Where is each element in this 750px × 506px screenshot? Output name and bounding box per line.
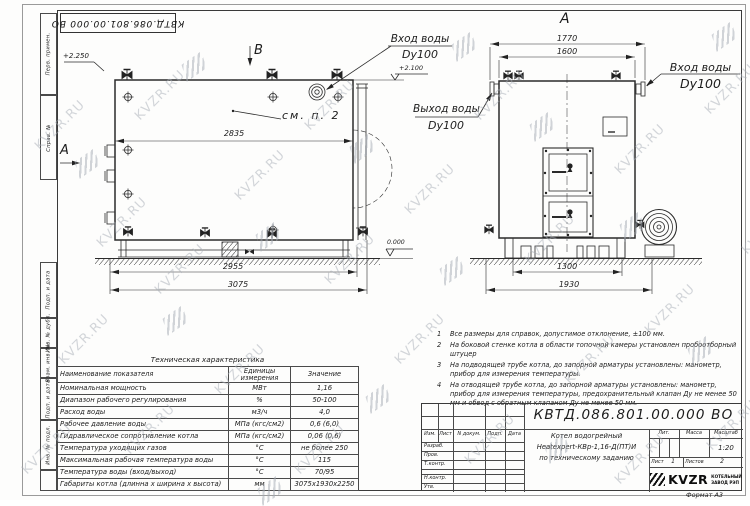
- row-prov: Пров.: [424, 453, 439, 458]
- lit-label: Лит.: [649, 431, 679, 436]
- drawing-sheet: KVZR.RUKVZR.RUKVZR.RUKVZR.RUKVZR.RUKVZR.…: [0, 0, 750, 500]
- row-tkontr: Т.контр.: [424, 462, 446, 467]
- tech-table-title: Техническая характеристика: [57, 355, 358, 366]
- outlet-dn: Dy100: [413, 120, 479, 131]
- listov-value: 2: [714, 459, 730, 465]
- inlet-front-dn: Dy100: [661, 78, 740, 91]
- table-row: Диапазон рабочего регулирования%50-100: [58, 395, 359, 407]
- table-row: Гидравлическое сопротивление котлаМПа (к…: [58, 431, 359, 443]
- strip-podp-data-2: Подп. и дата: [40, 378, 57, 420]
- col-units: Единицы измерения: [229, 367, 291, 383]
- side-view: [60, 46, 428, 294]
- elevation-top: +2.250: [63, 53, 89, 60]
- table-row: Габариты котла (длинна х ширина х высота…: [58, 479, 359, 491]
- strip-empty: [40, 470, 57, 491]
- row-utv: Утв.: [424, 485, 435, 490]
- note-1: 1Все размеры для справок, допустимое отк…: [437, 330, 742, 339]
- row-razrab: Разраб.: [424, 444, 444, 449]
- title-block: КВТД.086.801.00.000 ВО Изм. Лист N докум…: [421, 403, 742, 491]
- listov-label: Листов: [685, 460, 704, 465]
- tech-characteristics: Техническая характеристика Наименование …: [57, 355, 359, 491]
- product-name-line3: по техническому заданию: [526, 455, 647, 462]
- view-mark-a: А: [560, 12, 570, 26]
- table-row: Рабочее давление водыМПа (кгс/см2)0,6 (6…: [58, 419, 359, 431]
- row-nkontr: Н.контр.: [424, 476, 446, 481]
- outlet-label: Выход воды: [413, 104, 479, 115]
- section-mark-b: В: [254, 44, 263, 57]
- dim-1300: 1300: [547, 263, 587, 271]
- company-logo: KVZR КОТЕЛЬНЫЙ ЗАВОД РЭП: [649, 467, 743, 492]
- product-name-line2: Heatexpert-КВр-1,16-Д(ПТ)И: [524, 444, 649, 451]
- col-podp: Подп.: [485, 432, 505, 437]
- elevation-outlet: +2.100: [399, 65, 423, 72]
- top-stamp-box: КВТД.086.801.00.000 ВО: [60, 13, 176, 33]
- tech-table: Наименование показателя Единицы измерени…: [57, 366, 359, 491]
- note-2: 2На боковой стенке котла в области топоч…: [437, 341, 742, 359]
- product-name-line1: Котел водогрейный: [526, 433, 647, 440]
- table-row: Максимальная рабочая температура воды°С1…: [58, 455, 359, 467]
- kvzr-logo-text: KVZR: [668, 472, 708, 487]
- table-row: Температура уходящих газов°Сне более 250: [58, 443, 359, 455]
- dim-1930: 1930: [549, 281, 589, 289]
- scale-value: 1:20: [709, 445, 743, 452]
- table-row: Номинальная мощностьМВт1,16: [58, 383, 359, 395]
- col-param: Наименование показателя: [58, 367, 229, 383]
- strip-perv-primen: Перв. примен.: [40, 13, 57, 95]
- doc-number: КВТД.086.801.00.000 ВО: [524, 409, 743, 423]
- dim-1770: 1770: [547, 35, 587, 43]
- strip-podp-data-1: Подп. и дата: [40, 262, 57, 318]
- masshtab-label: Масштаб: [709, 431, 743, 436]
- strip-sprav-no: Справ. №: [40, 95, 57, 180]
- list-label: Лист: [651, 460, 664, 465]
- dim-2955: 2955: [213, 263, 253, 271]
- massa-label: Масса: [679, 431, 709, 436]
- col-value: Значение: [291, 367, 359, 383]
- kvzr-logo-icon: [650, 473, 665, 486]
- dim-2835: 2835: [214, 130, 254, 138]
- dim-1600: 1600: [547, 48, 587, 56]
- notes-list: 1Все размеры для справок, допустимое отк…: [437, 330, 742, 410]
- see-note-callout: см. п. 2: [282, 110, 341, 121]
- list-value: 1: [667, 459, 679, 465]
- strip-inv-podl: Инв. № подл.: [40, 420, 57, 470]
- col-list: Лист: [438, 432, 453, 437]
- inlet-front-label: Вход воды: [661, 62, 740, 73]
- company-line2: ЗАВОД РЭП: [711, 480, 742, 485]
- format-label: Формат А3: [686, 492, 723, 499]
- elevation-zero: 0.000: [387, 240, 405, 246]
- table-row: Температура воды (вход/выход)°С70/95: [58, 467, 359, 479]
- strip-vzam-inv: Взам. инв. №: [40, 348, 57, 378]
- table-row: Расход водым3/ч4,0: [58, 407, 359, 419]
- top-stamp-number: КВТД.086.801.00.000 ВО: [51, 18, 184, 28]
- col-izm: Изм.: [422, 432, 438, 437]
- note-3: 3На подводящей трубе котла, до запорной …: [437, 361, 742, 379]
- col-ndok: N докум.: [453, 432, 485, 437]
- inlet-top-label: Вход воды: [388, 34, 452, 45]
- section-mark-a: А: [60, 144, 69, 157]
- col-data: Дата: [505, 432, 524, 437]
- inlet-top-dn: Dy100: [388, 49, 452, 60]
- dim-3075: 3075: [218, 281, 258, 289]
